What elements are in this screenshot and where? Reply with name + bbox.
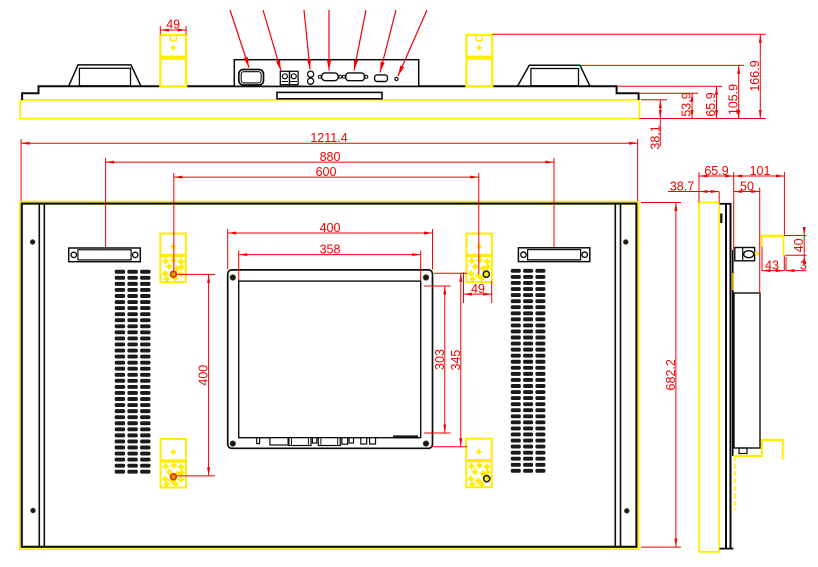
svg-text:400: 400 (320, 221, 341, 235)
svg-text:40: 40 (792, 238, 806, 252)
svg-text:49: 49 (166, 18, 180, 32)
svg-text:53.9: 53.9 (680, 92, 694, 116)
svg-text:50: 50 (740, 179, 754, 193)
svg-text:43: 43 (765, 258, 779, 272)
svg-text:38.7: 38.7 (670, 179, 694, 193)
svg-text:600: 600 (316, 165, 337, 179)
svg-text:400: 400 (197, 365, 211, 386)
svg-text:49: 49 (471, 282, 485, 296)
svg-text:303: 303 (433, 349, 447, 370)
svg-text:105.9: 105.9 (726, 84, 740, 115)
svg-text:65.9: 65.9 (704, 92, 718, 116)
svg-text:3: 3 (800, 258, 807, 272)
svg-text:358: 358 (320, 242, 341, 256)
svg-text:1211.4: 1211.4 (310, 131, 347, 145)
svg-text:101: 101 (750, 164, 771, 178)
svg-text:166.9: 166.9 (748, 60, 762, 91)
svg-text:880: 880 (320, 150, 341, 164)
svg-text:38.1: 38.1 (648, 125, 662, 149)
svg-text:682.2: 682.2 (664, 359, 678, 390)
svg-text:65.9: 65.9 (704, 164, 728, 178)
svg-text:345: 345 (449, 350, 463, 371)
